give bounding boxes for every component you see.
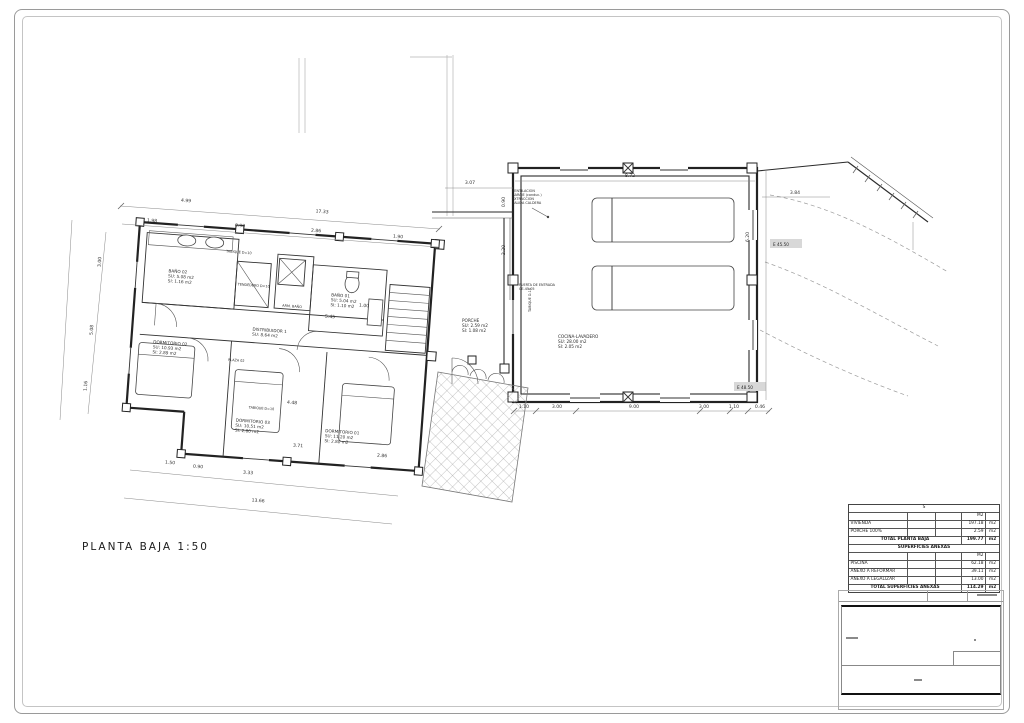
- title-block: [838, 590, 1004, 710]
- room-label-bano01: BAÑO 01 SU: 5.04 m2 SI: 1.10 m2: [330, 292, 358, 309]
- room-label-bano02: BAÑO 02 SU: 5.08 m2 SI: 1.16 m2: [168, 268, 196, 285]
- table-row-vivienda: VIVIENDA 197.18 m2: [849, 520, 999, 528]
- dimension-label: 9.00: [629, 404, 639, 410]
- dimension-label: 5.45: [325, 314, 336, 321]
- row-label: TOTAL PLANTA BAJA: [849, 537, 961, 544]
- dimension-label: 2.86: [311, 228, 322, 235]
- table-row-anexas-header: SUPERFICIES ANEXAS: [849, 544, 999, 552]
- lattice-pergola: [422, 365, 528, 502]
- dimension-label: 0.90: [193, 464, 204, 471]
- dimension-label: 17.33: [315, 209, 329, 216]
- row-label: PORCHE 100%: [849, 529, 907, 536]
- table-row-porche: PORCHE 100% 2.59 m2: [849, 528, 999, 536]
- dimension-label: 0.90: [501, 197, 507, 207]
- dimension-label: 1.98: [147, 218, 158, 225]
- dimension-label: 6.20: [745, 232, 751, 242]
- table-header-s: S: [849, 505, 999, 512]
- table-row: M2: [849, 552, 999, 560]
- table-row: M2: [849, 512, 999, 520]
- dimension-label: 4.99: [181, 198, 192, 205]
- dimension-label: 2.20: [501, 245, 507, 255]
- row-value: 2.59: [961, 529, 985, 536]
- table-row-reformar: ANEXO A REFORMAR 39.11 m2: [849, 568, 999, 576]
- table-row-piscina: PISCINA 62.18 m2: [849, 560, 999, 568]
- stairs: [385, 284, 430, 353]
- row-unit: m2: [985, 577, 999, 584]
- title-block-top-strip: [839, 591, 1003, 602]
- note-plaza: PLAZA 02: [228, 358, 245, 363]
- dimension-label: 3.33: [243, 470, 254, 477]
- elevation-label-a: E 45.50: [770, 239, 802, 248]
- dimension-label: 0.46: [755, 404, 765, 410]
- row-value: 39.11: [961, 569, 985, 576]
- dimension-label: 1.00: [359, 303, 370, 310]
- dimension-label: 1.50: [165, 460, 176, 467]
- boundary-lines: [299, 55, 453, 216]
- row-unit: m2: [985, 529, 999, 536]
- dimension-label: 8.72: [625, 173, 635, 179]
- dimension-label: 1.16: [83, 381, 90, 392]
- row-label: ANEXO A LEGALIZAR: [849, 577, 907, 584]
- row-value: 199.77: [961, 537, 985, 544]
- row-unit: m2: [985, 521, 999, 528]
- note-tendedero: TENDEDERO D=10: [237, 282, 270, 288]
- topography-curves: [760, 195, 948, 396]
- dimension-label: 3.07: [465, 180, 475, 186]
- dimension-label: 1.10: [729, 404, 739, 410]
- dimension-label: 1.10: [519, 404, 529, 410]
- dimension-label: 5.08: [89, 325, 96, 336]
- entry-door-note: PUERTA DE ENTRADA CE-45-05: [519, 283, 556, 291]
- svg-text:E 48.50: E 48.50: [737, 385, 753, 390]
- elevation-label-b: E 48.50: [734, 382, 766, 391]
- row-label: VIVIENDA: [849, 521, 907, 528]
- row-label: ANEXO A REFORMAR: [849, 569, 907, 576]
- porch-walls: [432, 212, 513, 384]
- dimension-label: 3.84: [790, 190, 800, 196]
- house-block: BAÑO 02 SU: 5.08 m2 SI: 1.16 m2 BAÑO 01 …: [119, 218, 444, 476]
- room-label-cocina-lavadero: COCINA-LAVADERO SU: 28.00 m2 SI: 2.05 m2: [558, 334, 600, 349]
- col-header-m2: M2: [961, 553, 985, 560]
- plan-title: PLANTA BAJA 1:50: [82, 541, 209, 553]
- dimension-label: 2.86: [377, 453, 388, 460]
- title-block-main: [841, 605, 1001, 695]
- row-unit: m2: [985, 569, 999, 576]
- dimension-label: 13.66: [251, 498, 265, 505]
- row-value: 13.00: [961, 577, 985, 584]
- dimension-label: 4.48: [287, 400, 298, 407]
- dimension-label: 3.00: [552, 404, 562, 410]
- dimension-label: 3.00: [97, 257, 104, 268]
- table-row-legalizar: ANEXO A LEGALIZAR 13.00 m2: [849, 576, 999, 584]
- dimension-label: 0.90: [235, 223, 246, 230]
- svg-text:VENTILACION GARAJE (cond: VENTILACION GARAJE (conduc.) EXTRACCION …: [512, 189, 543, 205]
- table-row: S: [849, 505, 999, 512]
- row-unit: m2: [985, 561, 999, 568]
- row-value: 197.18: [961, 521, 985, 528]
- row-unit: m2: [985, 537, 999, 544]
- table-row-total-planta-baja: TOTAL PLANTA BAJA 199.77 m2: [849, 536, 999, 544]
- dimension-label: 3.00: [699, 404, 709, 410]
- slope-edge: [757, 157, 933, 250]
- ventilation-note: VENTILACION GARAJE (conduc.) EXTRACCION …: [512, 189, 549, 218]
- note-armario: ARM. BAÑO: [282, 303, 302, 309]
- dimension-label: 3.71: [293, 443, 304, 450]
- row-value: 62.18: [961, 561, 985, 568]
- col-header-m2: M2: [961, 513, 985, 520]
- dimension-label: 1.90: [393, 234, 404, 241]
- room-label-distribuidor: DISTRIBUIDOR 1 SU: 8.64 m2: [252, 327, 288, 340]
- garage-vehicle-outlines: [592, 198, 734, 310]
- row-label: PISCINA: [849, 561, 907, 568]
- surfaces-table: S M2 VIVIENDA 197.18 m2 PORCHE 100% 2.59…: [848, 504, 1000, 593]
- room-label-porche: PORCHE SU: 2.59 m2 SI: 1.08 m2: [462, 318, 489, 333]
- section-header: SUPERFICIES ANEXAS: [849, 545, 999, 552]
- note-tabique-c: TABIQUE D-10: [528, 288, 532, 313]
- svg-text:E 45.50: E 45.50: [773, 242, 789, 247]
